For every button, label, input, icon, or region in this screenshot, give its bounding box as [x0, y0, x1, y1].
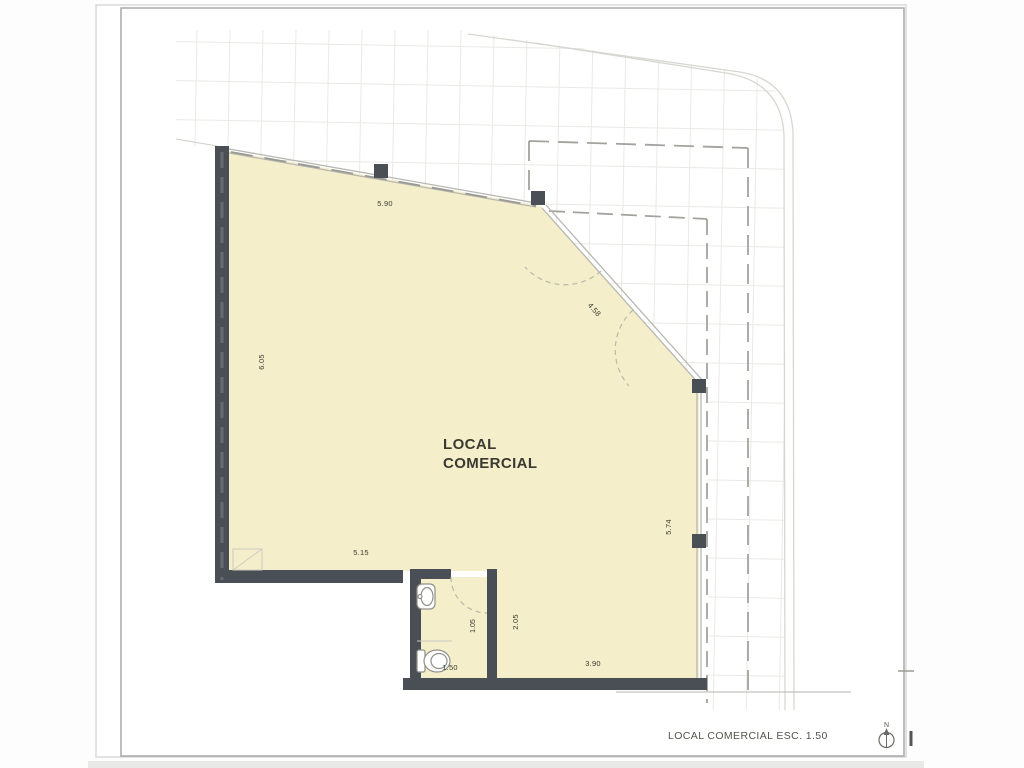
floor-plan-sheet: 5.90 6.05 4.58 5.74 5.15 1.05 2.05 1.50 …: [0, 0, 1024, 768]
sink-basin: [421, 588, 433, 606]
wall-bottom: [403, 678, 707, 690]
north-label: N: [884, 722, 889, 729]
dim-lower-zone-width: 3.90: [585, 659, 600, 668]
dim-right-side: 5.74: [664, 519, 673, 534]
mullion-corner: [531, 191, 545, 205]
dim-left-wall: 6.05: [257, 354, 266, 369]
dim-lower-zone-depth: 2.05: [511, 614, 520, 629]
mullion-right-lower: [692, 534, 706, 548]
wall-bath-top: [410, 569, 451, 579]
mullion-top: [374, 164, 388, 178]
wall-bath-right: [487, 569, 497, 678]
dim-bath-partition: 1.05: [470, 619, 477, 633]
dim-storefront-top: 5.90: [377, 199, 392, 208]
sheet-shadow: [88, 761, 924, 768]
dim-bottom-interior: 5.15: [353, 548, 368, 557]
room-label-line2: COMERCIAL: [443, 455, 537, 472]
mullion-right-upper: [692, 379, 706, 393]
room-label-line1: LOCAL: [443, 436, 497, 453]
wall-bottom-main: [215, 570, 403, 583]
sink-faucet: [418, 595, 422, 599]
drawing-caption: LOCAL COMERCIAL ESC. 1.50: [668, 730, 828, 742]
dim-bath-width: 1.50: [442, 663, 457, 672]
floor-plan-svg: 5.90 6.05 4.58 5.74 5.15 1.05 2.05 1.50 …: [0, 0, 1024, 768]
